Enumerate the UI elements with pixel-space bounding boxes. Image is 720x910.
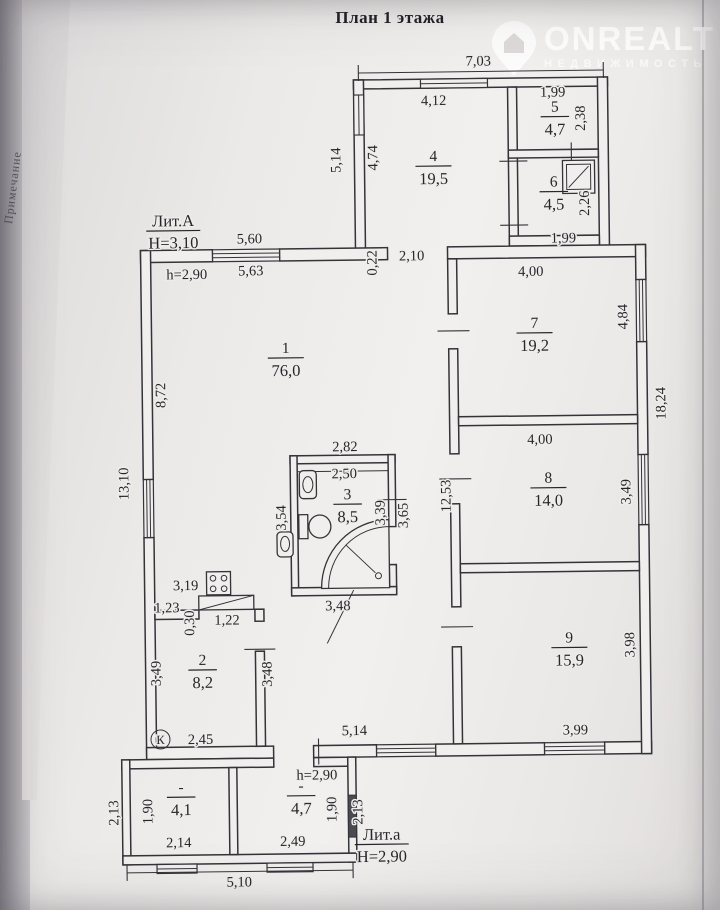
room-number: - (298, 778, 303, 795)
dimension-label: 2,26 (577, 190, 593, 216)
dimension-label: h=2,90 (166, 267, 207, 283)
window-icon (420, 78, 487, 88)
dimension-label: 4,84 (615, 303, 631, 329)
room-area: 19,5 (419, 169, 448, 188)
dimension-label: 2,50 (331, 466, 357, 482)
dimension-label: 3,49 (148, 661, 164, 687)
dimension-label: 2,82 (332, 439, 358, 455)
room-area: 8,5 (337, 507, 358, 526)
dimension-label: 2,10 (399, 248, 425, 264)
toilet-icon (299, 514, 331, 538)
room-number: 7 (530, 315, 538, 332)
dimension-label: 2,13 (106, 800, 122, 826)
dimension-label: 2,14 (166, 835, 192, 851)
room-area: 4,7 (545, 119, 566, 138)
dimension-label: 1,99 (551, 230, 577, 246)
dimension-label: 5,10 (226, 874, 252, 890)
dimension-label: 18,24 (653, 386, 669, 420)
dimension-label: 1,90 (140, 799, 156, 825)
washbasin-icon (277, 532, 293, 557)
room-number: 3 (344, 486, 352, 503)
room-number: 6 (550, 174, 558, 191)
shower-tray-icon (562, 160, 594, 193)
dimension-label: 5,14 (328, 147, 344, 173)
corner-shower-icon (321, 520, 390, 589)
dimension-label: 4,00 (518, 264, 544, 280)
dimension-label: 4,00 (527, 432, 553, 448)
window-icon (636, 279, 647, 341)
building-label: Лит.а (363, 825, 401, 844)
building-underline (355, 844, 409, 845)
dimension-label: 1,22 (214, 612, 240, 628)
room-area: 19,2 (520, 336, 549, 355)
sink-icon (299, 471, 316, 499)
dimension-label: 3,39 (373, 500, 389, 526)
dimension-label: 3,54 (274, 504, 290, 530)
room-number: 4 (429, 148, 437, 165)
room-area: 15,9 (555, 650, 584, 669)
kitchen-marker-letter: К (156, 733, 165, 747)
room-number: 1 (282, 340, 290, 357)
building-label: Лит.А (152, 211, 194, 231)
dimension-label: 1,90 (324, 797, 340, 823)
building-height-label: Н=3,10 (148, 233, 198, 253)
dimension-label: 0,22 (364, 250, 380, 276)
window-icon (545, 742, 605, 755)
photographed-floorplan-page: Примечание План 1 этажа ONREALT НЕДВИЖИМ… (0, 0, 720, 910)
dimension-label: 3,65 (396, 503, 412, 529)
room-area: 4,5 (544, 194, 565, 213)
dimension-label: 1,23 (154, 600, 180, 616)
room-area: 4,7 (291, 799, 312, 818)
floor-plan-drawing: К 7,034,121,992,385,144,742,261,995,60h=… (0, 0, 720, 910)
room-number: 8 (544, 470, 552, 487)
dimension-label: 2,13 (350, 799, 366, 825)
dimension-label: 13,10 (116, 467, 132, 500)
building-height-label: Н=2,90 (357, 846, 407, 866)
dimension-label: 3,49 (618, 479, 634, 505)
dimension-label: 8,72 (153, 383, 169, 409)
dimension-label: 2,45 (188, 732, 214, 748)
room-number: 5 (551, 99, 559, 116)
dimension-label: 3,48 (325, 598, 351, 614)
dimension-label: 3,99 (563, 722, 589, 738)
window-icon (143, 480, 154, 538)
dimension-label: 12,53 (438, 480, 454, 513)
window-icon (212, 249, 279, 262)
dimension-label: 2,49 (280, 834, 306, 850)
room-area: 8,2 (192, 673, 213, 692)
dimension-label: 5,14 (342, 723, 368, 739)
dimension-label: 7,03 (465, 53, 491, 69)
dimension-label: 4,12 (421, 93, 447, 109)
dimension-label: 5,60 (237, 231, 263, 247)
room-number: - (178, 779, 183, 796)
window-icon (377, 744, 436, 757)
kitchen-counter-icon (199, 595, 254, 610)
dimension-label: 3,19 (173, 578, 199, 594)
room-number: 9 (565, 629, 573, 646)
dimension-label: 5,63 (238, 263, 264, 279)
room-area: 4,1 (171, 800, 192, 819)
room-area: 14,0 (534, 491, 563, 510)
window-icon (354, 95, 364, 135)
window-icon (638, 454, 649, 524)
dimension-label: 3,48 (260, 661, 276, 687)
dimension-label: 3,98 (622, 632, 638, 658)
room-number: 2 (199, 652, 207, 669)
dimension-label: 2,38 (573, 105, 589, 131)
dimension-label: 0,30 (182, 610, 198, 636)
dimension-label: 4,74 (365, 144, 381, 170)
building-underline (146, 230, 200, 231)
stove-icon (206, 572, 230, 595)
room-area: 76,0 (271, 361, 300, 380)
